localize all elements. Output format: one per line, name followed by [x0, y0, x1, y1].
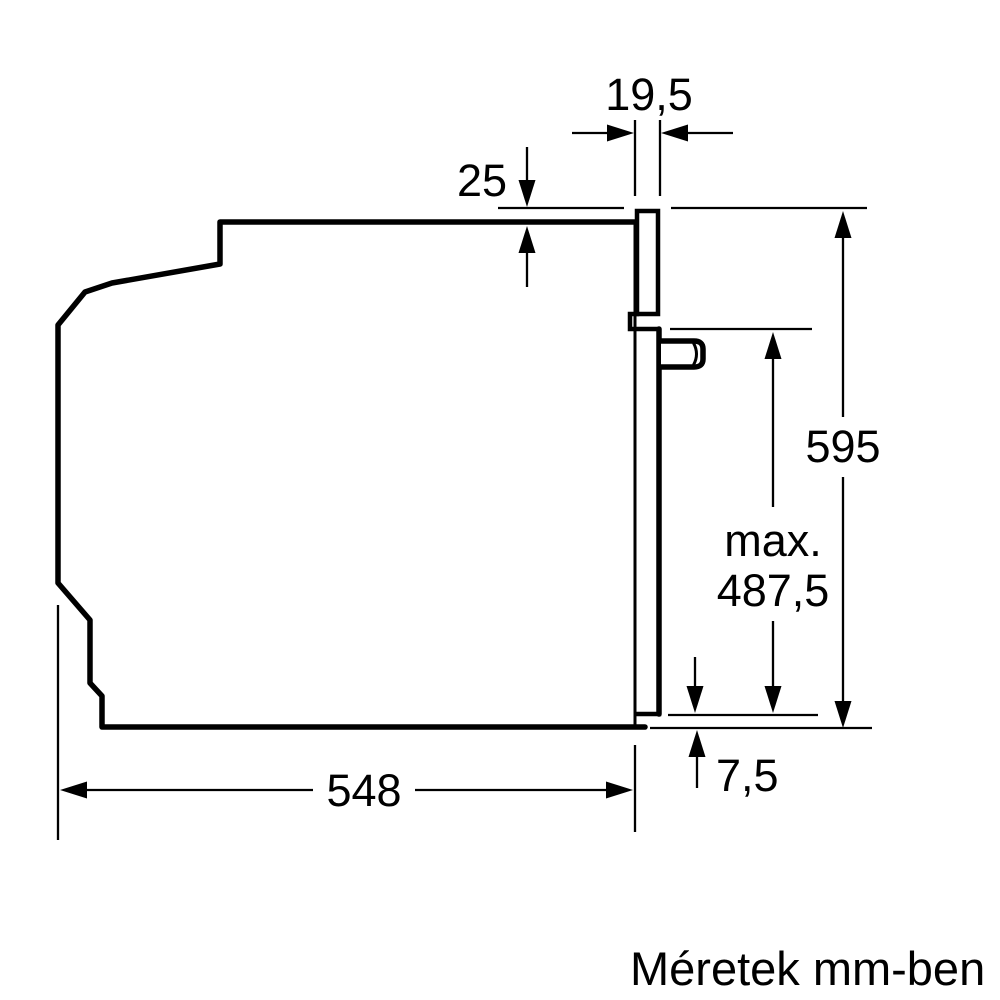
- arrowhead-down-icon: [765, 686, 782, 713]
- arrowhead-down-icon: [519, 180, 536, 207]
- dim-label-body-depth: 548: [326, 765, 401, 816]
- control-panel-fascia: [637, 211, 658, 314]
- dimension-door-clearance: max. 487,5: [670, 329, 829, 713]
- units-caption: Méretek mm-ben: [630, 942, 985, 995]
- dimension-body-depth: 548: [58, 605, 635, 840]
- arrowhead-left-icon: [661, 125, 688, 142]
- arrowhead-down-icon: [835, 701, 852, 728]
- dimension-top-overlap: 25: [457, 147, 624, 287]
- arrowhead-right-icon: [606, 782, 633, 799]
- dim-label-door-clearance-prefix: max.: [724, 515, 822, 566]
- oven-side-view-diagram: 19,5 25 595 max. 487,5: [0, 0, 1000, 1000]
- oven-door: [630, 211, 703, 714]
- oven-body-outline: [58, 222, 645, 727]
- arrowhead-left-icon: [60, 782, 87, 799]
- arrowhead-down-icon: [687, 686, 704, 713]
- arrowhead-up-icon: [765, 332, 782, 359]
- arrowhead-right-icon: [607, 125, 634, 142]
- dimension-bottom-gap: 7,5: [650, 657, 872, 801]
- oven-dimension-diagram-page: 19,5 25 595 max. 487,5: [0, 0, 1000, 1000]
- dim-label-front-panel-depth: 19,5: [605, 69, 693, 120]
- dim-label-top-overlap: 25: [457, 155, 507, 206]
- dimension-front-panel-depth: 19,5: [572, 69, 733, 196]
- dim-label-door-clearance-value: 487,5: [717, 565, 830, 616]
- dim-label-total-height: 595: [805, 421, 880, 472]
- dim-label-bottom-gap: 7,5: [716, 750, 779, 801]
- dimension-total-height: 595: [671, 208, 881, 728]
- arrowhead-up-icon: [519, 226, 536, 253]
- arrowhead-up-icon: [689, 730, 706, 757]
- arrowhead-up-icon: [835, 211, 852, 238]
- oven-body: [58, 222, 645, 727]
